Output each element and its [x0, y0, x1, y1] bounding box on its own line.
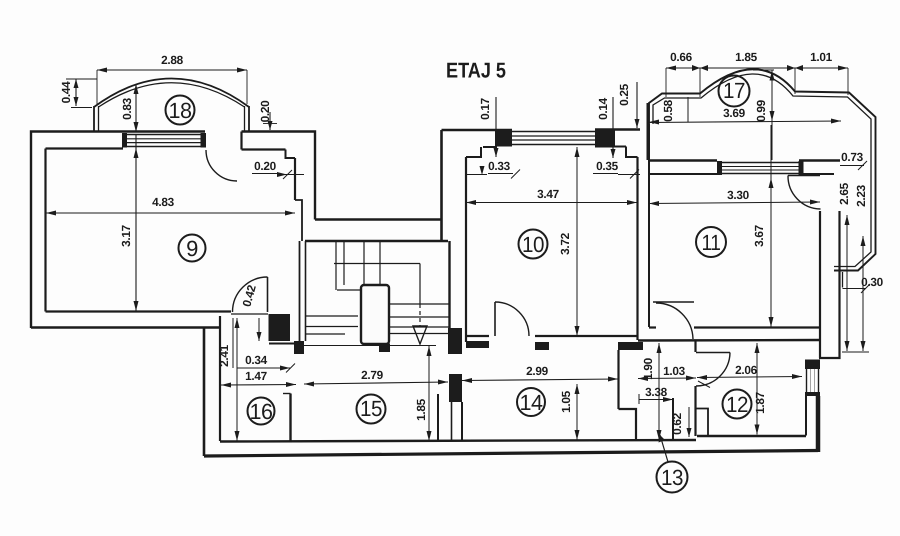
svg-text:1.47: 1.47 — [245, 369, 267, 383]
svg-text:14: 14 — [520, 390, 543, 415]
svg-text:1.01: 1.01 — [810, 50, 832, 64]
svg-text:3.47: 3.47 — [537, 187, 559, 201]
svg-text:2.41: 2.41 — [217, 344, 231, 366]
svg-text:15: 15 — [360, 396, 382, 421]
svg-text:0.99: 0.99 — [754, 99, 768, 121]
svg-text:2.88: 2.88 — [161, 53, 183, 67]
svg-text:12: 12 — [726, 392, 748, 417]
svg-text:ETAJ 5: ETAJ 5 — [446, 59, 506, 83]
svg-text:0.34: 0.34 — [245, 353, 267, 367]
svg-text:0.14: 0.14 — [596, 97, 610, 119]
svg-text:0.20: 0.20 — [254, 159, 276, 173]
svg-text:0.30: 0.30 — [861, 275, 883, 289]
svg-text:0.25: 0.25 — [617, 83, 631, 105]
svg-text:16: 16 — [250, 399, 273, 424]
svg-text:13: 13 — [661, 465, 683, 490]
svg-text:3.72: 3.72 — [558, 232, 572, 254]
svg-text:2.65: 2.65 — [837, 182, 851, 204]
svg-text:0.17: 0.17 — [478, 97, 492, 119]
svg-text:17: 17 — [723, 78, 745, 103]
svg-text:2.79: 2.79 — [361, 368, 383, 382]
svg-text:0.33: 0.33 — [488, 159, 510, 173]
svg-text:10: 10 — [522, 232, 544, 257]
svg-text:4.83: 4.83 — [152, 195, 174, 209]
svg-text:1.85: 1.85 — [735, 50, 757, 64]
svg-text:2.99: 2.99 — [526, 364, 548, 378]
svg-text:18: 18 — [169, 98, 192, 123]
svg-text:0.83: 0.83 — [120, 97, 134, 119]
svg-text:1.85: 1.85 — [414, 398, 428, 420]
svg-text:3.38: 3.38 — [645, 385, 667, 399]
svg-text:1.03: 1.03 — [663, 364, 685, 378]
svg-text:0.58: 0.58 — [661, 99, 675, 121]
svg-text:0.35: 0.35 — [596, 159, 618, 173]
svg-text:3.69: 3.69 — [723, 106, 745, 120]
svg-text:0.73: 0.73 — [841, 150, 863, 164]
svg-text:0.44: 0.44 — [59, 81, 73, 103]
svg-text:1.87: 1.87 — [753, 391, 767, 413]
svg-text:0.62: 0.62 — [670, 412, 684, 434]
svg-text:1.05: 1.05 — [559, 390, 573, 412]
svg-text:0.20: 0.20 — [258, 100, 272, 122]
svg-text:0.66: 0.66 — [670, 50, 692, 64]
svg-text:3.17: 3.17 — [119, 224, 133, 246]
svg-text:2.23: 2.23 — [854, 184, 868, 206]
svg-text:3.67: 3.67 — [752, 224, 766, 246]
svg-text:2.06: 2.06 — [735, 363, 757, 377]
svg-text:3.30: 3.30 — [727, 188, 749, 202]
svg-text:9: 9 — [186, 236, 198, 261]
svg-text:11: 11 — [702, 230, 721, 255]
